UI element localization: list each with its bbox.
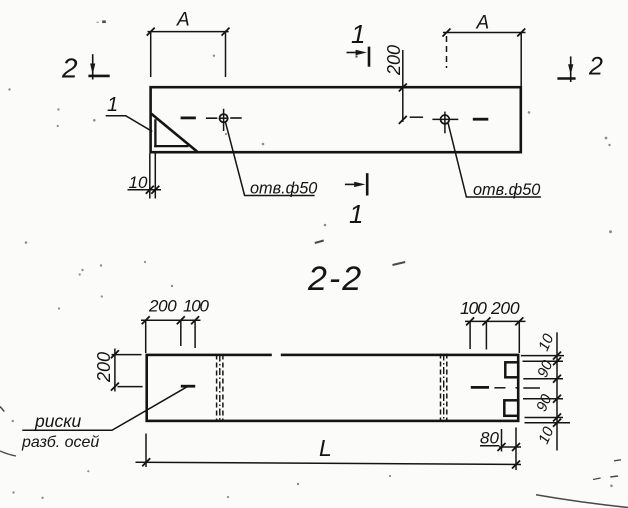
svg-text:2-2: 2-2 xyxy=(307,260,363,298)
svg-text:L: L xyxy=(319,435,332,461)
svg-text:200: 200 xyxy=(94,352,114,383)
svg-text:2: 2 xyxy=(61,53,78,84)
svg-text:А: А xyxy=(176,10,190,31)
svg-text:разб. осей: разб. осей xyxy=(21,434,99,451)
svg-text:1: 1 xyxy=(349,199,363,229)
svg-text:1: 1 xyxy=(107,94,118,116)
svg-text:2: 2 xyxy=(588,53,603,81)
svg-text:риски: риски xyxy=(34,411,81,431)
svg-text:А: А xyxy=(476,13,490,34)
svg-text:100: 100 xyxy=(460,298,487,318)
svg-text:отв.ф50: отв.ф50 xyxy=(473,181,540,199)
svg-text:10: 10 xyxy=(129,173,148,192)
svg-text:200: 200 xyxy=(148,297,177,316)
svg-text:1: 1 xyxy=(351,19,365,49)
svg-text:200: 200 xyxy=(490,298,520,318)
svg-text:отв.ф50: отв.ф50 xyxy=(250,180,317,198)
svg-text:100: 100 xyxy=(183,297,210,316)
svg-text:200: 200 xyxy=(384,45,404,76)
svg-text:80: 80 xyxy=(480,429,499,448)
